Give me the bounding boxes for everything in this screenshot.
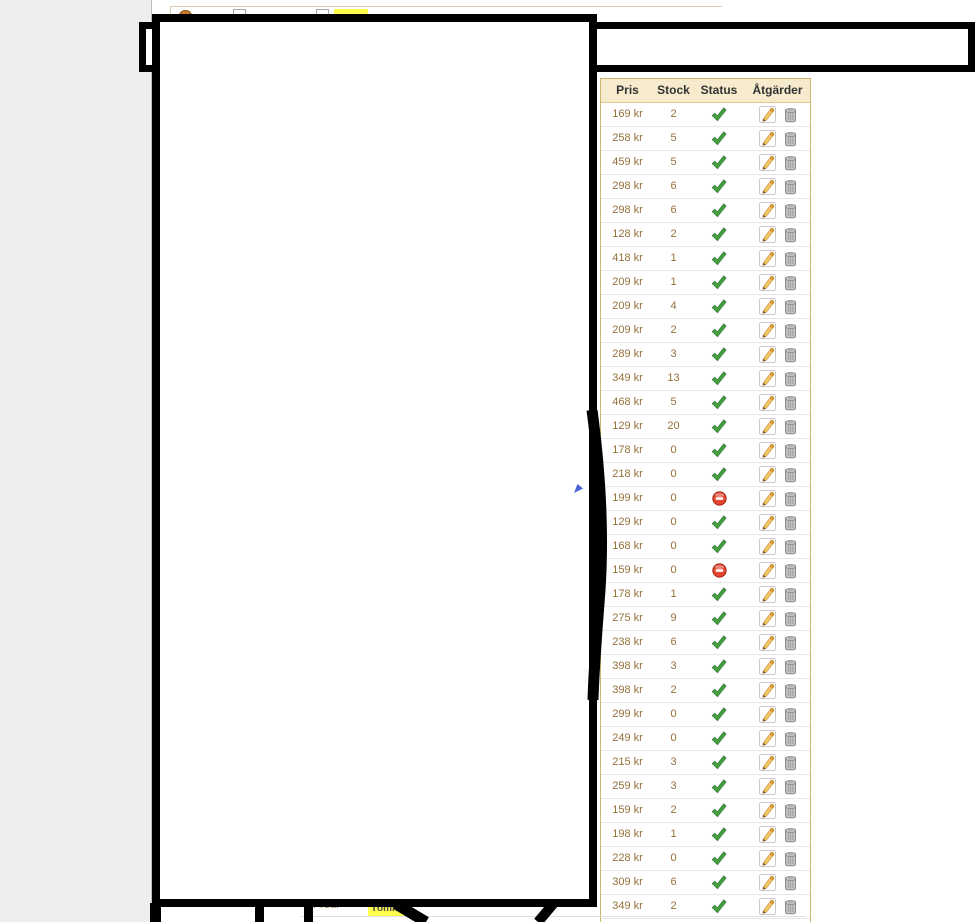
check-icon[interactable]: [711, 895, 727, 914]
stock-cell: 20: [654, 415, 693, 438]
disabled-icon[interactable]: [712, 487, 727, 506]
check-icon[interactable]: [711, 103, 727, 122]
pencil-icon[interactable]: [759, 706, 776, 723]
actions-cell: [745, 199, 810, 222]
table-body: 169 kr2258 kr5459 kr5298 kr6298 kr6128 k…: [601, 103, 810, 919]
stock-cell: 1: [654, 271, 693, 294]
price-cell: 249 kr: [601, 727, 654, 750]
price-cell: 159 kr: [601, 799, 654, 822]
actions-cell: [745, 343, 810, 366]
stock-cell: 6: [654, 871, 693, 894]
pencil-icon[interactable]: [759, 250, 776, 267]
price-cell: 129 kr: [601, 511, 654, 534]
pencil-icon[interactable]: [759, 178, 776, 195]
pencil-icon[interactable]: [759, 466, 776, 483]
table-row: 309 kr6: [601, 871, 810, 895]
check-icon[interactable]: [711, 199, 727, 218]
pencil-icon[interactable]: [759, 586, 776, 603]
table-row: 259 kr3: [601, 775, 810, 799]
trash-icon[interactable]: [784, 419, 797, 435]
table-row: 209 kr1: [601, 271, 810, 295]
price-cell: 218 kr: [601, 463, 654, 486]
table-row: 418 kr1: [601, 247, 810, 271]
pencil-icon[interactable]: [759, 322, 776, 339]
stock-cell: 2: [654, 679, 693, 702]
price-cell: 178 kr: [601, 583, 654, 606]
actions-cell: [745, 655, 810, 678]
pencil-icon[interactable]: [759, 802, 776, 819]
stock-cell: 0: [654, 703, 693, 726]
trash-icon[interactable]: [784, 611, 797, 627]
actions-cell: [745, 583, 810, 606]
stock-cell: 0: [654, 727, 693, 750]
check-icon[interactable]: [711, 727, 727, 746]
trash-icon[interactable]: [784, 899, 797, 915]
stock-cell: 1: [654, 583, 693, 606]
table-row: 215 kr3: [601, 751, 810, 775]
pencil-icon[interactable]: [759, 514, 776, 531]
pencil-icon[interactable]: [759, 898, 776, 915]
pencil-icon[interactable]: [759, 346, 776, 363]
table-row: 178 kr0: [601, 439, 810, 463]
check-icon[interactable]: [711, 391, 727, 410]
stock-cell: 0: [654, 511, 693, 534]
table-row: 459 kr5: [601, 151, 810, 175]
price-cell: 468 kr: [601, 391, 654, 414]
price-cell: 289 kr: [601, 343, 654, 366]
table-row: 398 kr3: [601, 655, 810, 679]
stock-cell: 6: [654, 175, 693, 198]
table-row: 159 kr2: [601, 799, 810, 823]
trash-icon[interactable]: [784, 155, 797, 171]
actions-cell: [745, 127, 810, 150]
actions-cell: [745, 151, 810, 174]
price-cell: 198 kr: [601, 823, 654, 846]
trash-icon[interactable]: [784, 875, 797, 891]
price-cell: 349 kr: [601, 367, 654, 390]
trash-icon[interactable]: [784, 803, 797, 819]
pencil-icon[interactable]: [759, 826, 776, 843]
price-cell: 209 kr: [601, 319, 654, 342]
pencil-icon[interactable]: [759, 778, 776, 795]
table-row: 289 kr3: [601, 343, 810, 367]
pencil-icon[interactable]: [759, 154, 776, 171]
actions-cell: [745, 487, 810, 510]
table-row: 258 kr5: [601, 127, 810, 151]
trash-icon[interactable]: [784, 203, 797, 219]
check-icon[interactable]: [711, 655, 727, 674]
actions-cell: [745, 367, 810, 390]
price-cell: 228 kr: [601, 847, 654, 870]
trash-icon[interactable]: [784, 587, 797, 603]
price-cell: 418 kr: [601, 247, 654, 270]
trash-icon[interactable]: [784, 683, 797, 699]
check-icon[interactable]: [711, 703, 727, 722]
actions-cell: [745, 799, 810, 822]
table-row: 168 kr0: [601, 535, 810, 559]
price-cell: 209 kr: [601, 295, 654, 318]
actions-cell: [745, 415, 810, 438]
table-row: 209 kr2: [601, 319, 810, 343]
pencil-icon[interactable]: [759, 850, 776, 867]
price-cell: 238 kr: [601, 631, 654, 654]
trash-icon[interactable]: [784, 299, 797, 315]
trash-icon[interactable]: [784, 251, 797, 267]
stock-cell: 2: [654, 799, 693, 822]
price-cell: 178 kr: [601, 439, 654, 462]
trash-icon[interactable]: [784, 227, 797, 243]
pencil-icon[interactable]: [759, 274, 776, 291]
stock-cell: 2: [654, 319, 693, 342]
actions-cell: [745, 559, 810, 582]
stock-cell: 2: [654, 895, 693, 918]
check-icon[interactable]: [711, 439, 727, 458]
trash-icon[interactable]: [784, 539, 797, 555]
price-cell: 275 kr: [601, 607, 654, 630]
check-icon[interactable]: [711, 607, 727, 626]
actions-cell: [745, 511, 810, 534]
header-stock: Stock: [654, 79, 693, 102]
table-row: 349 kr13: [601, 367, 810, 391]
stock-cell: 5: [654, 391, 693, 414]
check-icon[interactable]: [711, 775, 727, 794]
stock-cell: 13: [654, 367, 693, 390]
stock-cell: 1: [654, 823, 693, 846]
pencil-icon[interactable]: [759, 634, 776, 651]
check-icon[interactable]: [711, 823, 727, 842]
table-row: 218 kr0: [601, 463, 810, 487]
trash-icon[interactable]: [784, 515, 797, 531]
stock-cell: 3: [654, 655, 693, 678]
pencil-icon[interactable]: [759, 730, 776, 747]
price-cell: 299 kr: [601, 703, 654, 726]
table-row: 159 kr0: [601, 559, 810, 583]
table-row: 238 kr6: [601, 631, 810, 655]
trash-icon[interactable]: [784, 635, 797, 651]
actions-cell: [745, 271, 810, 294]
check-icon[interactable]: [711, 751, 727, 770]
check-icon[interactable]: [711, 583, 727, 602]
pencil-icon[interactable]: [759, 754, 776, 771]
stock-cell: 2: [654, 103, 693, 126]
stock-cell: 3: [654, 751, 693, 774]
table-row: 468 kr5: [601, 391, 810, 415]
stock-cell: 0: [654, 559, 693, 582]
trash-icon[interactable]: [784, 347, 797, 363]
check-icon[interactable]: [711, 847, 727, 866]
trash-icon[interactable]: [784, 443, 797, 459]
price-cell: 459 kr: [601, 151, 654, 174]
pencil-icon[interactable]: [759, 682, 776, 699]
table-row: 129 kr0: [601, 511, 810, 535]
actions-cell: [745, 871, 810, 894]
table-row: 228 kr0: [601, 847, 810, 871]
actions-cell: [745, 223, 810, 246]
header-status: Status: [693, 79, 745, 102]
price-cell: 129 kr: [601, 415, 654, 438]
check-icon[interactable]: [711, 415, 727, 434]
pencil-icon[interactable]: [759, 538, 776, 555]
price-cell: 259 kr: [601, 775, 654, 798]
pencil-icon[interactable]: [759, 562, 776, 579]
price-cell: 398 kr: [601, 679, 654, 702]
actions-cell: [745, 751, 810, 774]
stock-cell: 0: [654, 439, 693, 462]
price-cell: 258 kr: [601, 127, 654, 150]
table-row: 169 kr2: [601, 103, 810, 127]
actions-cell: [745, 295, 810, 318]
actions-cell: [745, 391, 810, 414]
table-row: 249 kr0: [601, 727, 810, 751]
stock-cell: 2: [654, 223, 693, 246]
pencil-icon[interactable]: [759, 106, 776, 123]
actions-cell: [745, 895, 810, 918]
stock-cell: 4: [654, 295, 693, 318]
annotation-stroke: [150, 903, 161, 922]
table-row: 298 kr6: [601, 175, 810, 199]
annotation-stroke: [304, 907, 313, 922]
trash-icon[interactable]: [784, 707, 797, 723]
actions-cell: [745, 103, 810, 126]
trash-icon[interactable]: [784, 755, 797, 771]
pencil-icon[interactable]: [759, 298, 776, 315]
trash-icon[interactable]: [784, 371, 797, 387]
trash-icon[interactable]: [784, 131, 797, 147]
page-left-margin: [0, 0, 152, 922]
screenshot-stage: Pris Stock Status Åtgärder 169 kr2258 kr…: [0, 0, 978, 922]
actions-cell: [745, 727, 810, 750]
stock-cell: 6: [654, 199, 693, 222]
check-icon[interactable]: [711, 127, 727, 146]
actions-cell: [745, 175, 810, 198]
table-header-row: Pris Stock Status Åtgärder: [601, 79, 810, 103]
price-cell: 309 kr: [601, 871, 654, 894]
trash-icon[interactable]: [784, 779, 797, 795]
actions-cell: [745, 535, 810, 558]
check-icon[interactable]: [711, 631, 727, 650]
pencil-icon[interactable]: [759, 130, 776, 147]
annotation-stroke: [255, 907, 264, 922]
check-icon[interactable]: [711, 535, 727, 554]
stock-cell: 5: [654, 151, 693, 174]
bottom-divider: [300, 916, 805, 917]
annotation-rectangle-main: [152, 14, 597, 907]
check-icon[interactable]: [711, 295, 727, 314]
actions-cell: [745, 463, 810, 486]
price-cell: 199 kr: [601, 487, 654, 510]
table-row: 298 kr6: [601, 199, 810, 223]
price-cell: 398 kr: [601, 655, 654, 678]
price-cell: 298 kr: [601, 175, 654, 198]
actions-cell: [745, 607, 810, 630]
price-cell: 298 kr: [601, 199, 654, 222]
header-atgarder: Åtgärder: [745, 79, 810, 102]
products-table: Pris Stock Status Åtgärder 169 kr2258 kr…: [600, 78, 811, 922]
disabled-icon[interactable]: [712, 559, 727, 578]
trash-icon[interactable]: [784, 827, 797, 843]
trash-icon[interactable]: [784, 323, 797, 339]
trash-icon[interactable]: [784, 563, 797, 579]
stock-cell: 6: [654, 631, 693, 654]
check-icon[interactable]: [711, 247, 727, 266]
table-row: 398 kr2: [601, 679, 810, 703]
trash-icon[interactable]: [784, 395, 797, 411]
price-cell: 169 kr: [601, 103, 654, 126]
stock-cell: 0: [654, 487, 693, 510]
header-pris: Pris: [601, 79, 654, 102]
stock-cell: 0: [654, 847, 693, 870]
check-icon[interactable]: [711, 367, 727, 386]
stock-cell: 3: [654, 775, 693, 798]
check-icon[interactable]: [711, 343, 727, 362]
stock-cell: 3: [654, 343, 693, 366]
pencil-icon[interactable]: [759, 874, 776, 891]
check-icon[interactable]: [711, 175, 727, 194]
actions-cell: [745, 775, 810, 798]
pencil-icon[interactable]: [759, 658, 776, 675]
table-row: 128 kr2: [601, 223, 810, 247]
actions-cell: [745, 247, 810, 270]
check-icon[interactable]: [711, 679, 727, 698]
pencil-icon[interactable]: [759, 394, 776, 411]
table-row: 198 kr1: [601, 823, 810, 847]
actions-cell: [745, 631, 810, 654]
check-icon[interactable]: [711, 223, 727, 242]
price-cell: 215 kr: [601, 751, 654, 774]
actions-cell: [745, 823, 810, 846]
pencil-icon[interactable]: [759, 418, 776, 435]
table-row: 299 kr0: [601, 703, 810, 727]
check-icon[interactable]: [711, 319, 727, 338]
trash-icon[interactable]: [784, 491, 797, 507]
check-icon[interactable]: [711, 463, 727, 482]
price-cell: 168 kr: [601, 535, 654, 558]
blue-cursor-mark: [573, 483, 584, 494]
pencil-icon[interactable]: [759, 610, 776, 627]
trash-icon[interactable]: [784, 179, 797, 195]
table-row: 209 kr4: [601, 295, 810, 319]
check-icon[interactable]: [711, 799, 727, 818]
check-icon[interactable]: [711, 511, 727, 530]
price-cell: 128 kr: [601, 223, 654, 246]
stock-cell: 0: [654, 535, 693, 558]
trash-icon[interactable]: [784, 467, 797, 483]
price-cell: 209 kr: [601, 271, 654, 294]
trash-icon[interactable]: [784, 731, 797, 747]
price-cell: 349 kr: [601, 895, 654, 918]
stock-cell: 1: [654, 247, 693, 270]
trash-icon[interactable]: [784, 851, 797, 867]
actions-cell: [745, 703, 810, 726]
stock-cell: 5: [654, 127, 693, 150]
actions-cell: [745, 679, 810, 702]
check-icon[interactable]: [711, 271, 727, 290]
table-row: 178 kr1: [601, 583, 810, 607]
table-row: 129 kr20: [601, 415, 810, 439]
stock-cell: 0: [654, 463, 693, 486]
pencil-icon[interactable]: [759, 442, 776, 459]
pencil-icon[interactable]: [759, 490, 776, 507]
actions-cell: [745, 439, 810, 462]
actions-cell: [745, 847, 810, 870]
pencil-icon[interactable]: [759, 226, 776, 243]
trash-icon[interactable]: [784, 659, 797, 675]
pencil-icon[interactable]: [759, 370, 776, 387]
actions-cell: [745, 319, 810, 342]
trash-icon[interactable]: [784, 275, 797, 291]
table-row: 199 kr0: [601, 487, 810, 511]
price-cell: 159 kr: [601, 559, 654, 582]
table-row: 275 kr9: [601, 607, 810, 631]
pencil-icon[interactable]: [759, 202, 776, 219]
stock-cell: 9: [654, 607, 693, 630]
trash-icon[interactable]: [784, 107, 797, 123]
check-icon[interactable]: [711, 871, 727, 890]
check-icon[interactable]: [711, 151, 727, 170]
